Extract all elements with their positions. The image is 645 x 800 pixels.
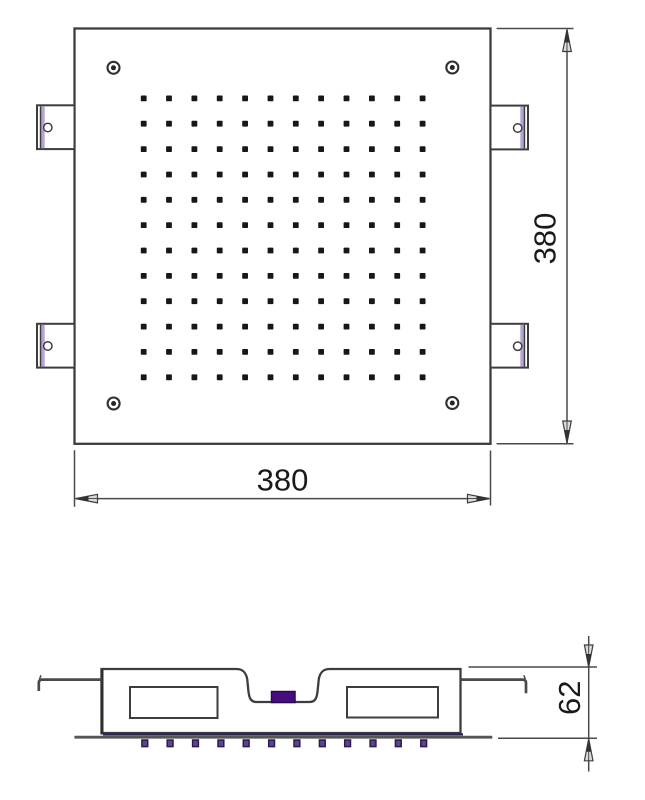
svg-text:380: 380 (528, 213, 563, 265)
svg-text:380: 380 (257, 463, 309, 498)
svg-text:62: 62 (552, 681, 587, 715)
